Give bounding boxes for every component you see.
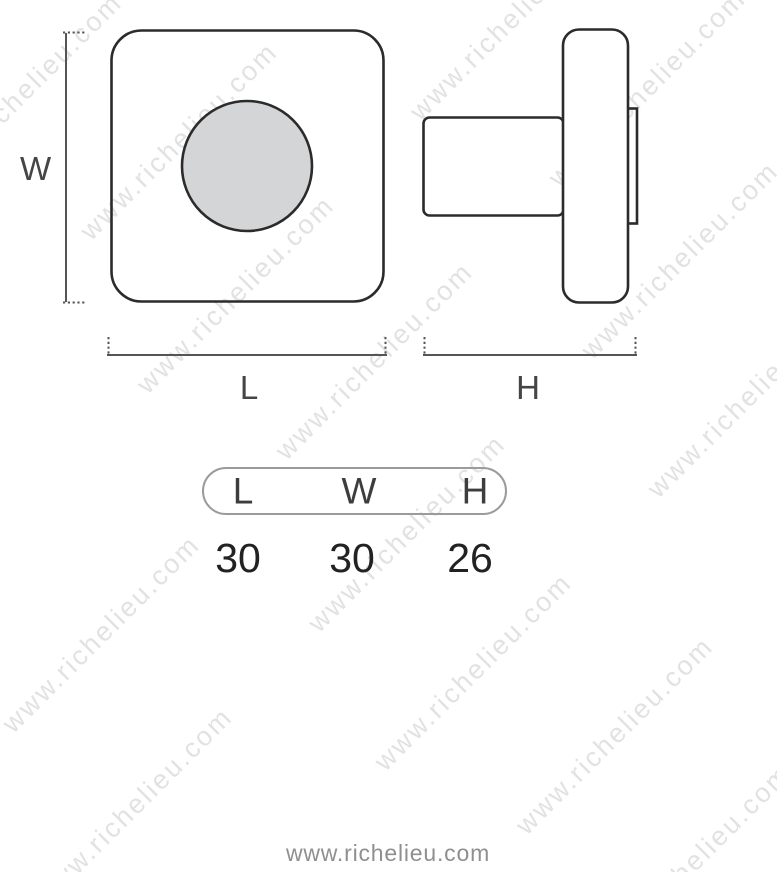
spec-value-w: 30 [329, 538, 375, 579]
product-dimension-diagram: www.richelieu.com www.richelieu.com www.… [0, 0, 777, 872]
width-dimension-label: W [20, 152, 51, 185]
spec-value-h: 26 [447, 538, 493, 579]
footer-url: www.richelieu.com [286, 842, 490, 865]
spec-table-header-pill: L W H [202, 467, 507, 515]
length-dimension-label: L [240, 371, 258, 404]
knob-cap-circle [182, 101, 312, 231]
height-dimension-label: H [516, 371, 540, 404]
spec-header-h: H [462, 473, 489, 510]
technical-drawing [0, 0, 777, 430]
spec-header-l: L [233, 473, 254, 510]
spec-value-l: 30 [215, 538, 261, 579]
side-view-stem [424, 118, 564, 216]
side-view-face [563, 30, 628, 303]
spec-header-w: W [342, 473, 377, 510]
